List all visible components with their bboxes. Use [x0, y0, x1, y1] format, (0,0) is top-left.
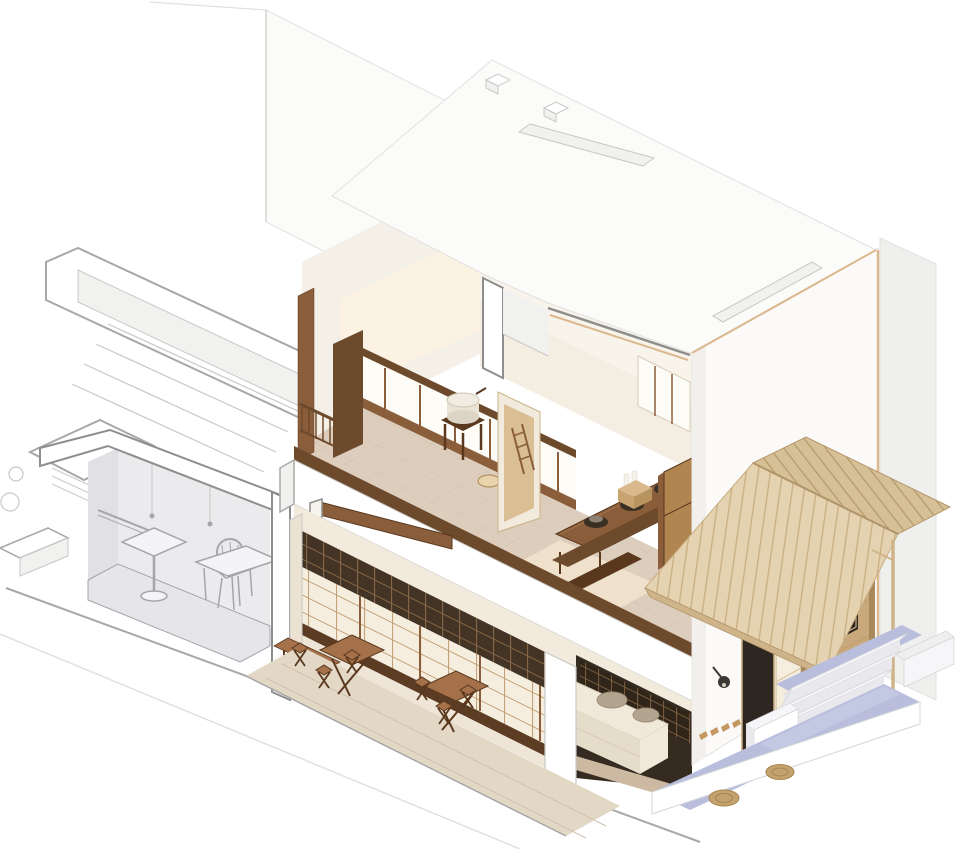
pedestal-table-base	[141, 591, 167, 601]
pot-lid	[589, 516, 603, 523]
pendant-lamp	[208, 522, 213, 527]
stone-mill-base	[447, 410, 479, 424]
kamado-burner-lid	[633, 708, 659, 722]
round-woven-mat	[766, 765, 794, 780]
scene-canvas	[0, 0, 960, 849]
round-woven-mat	[709, 790, 739, 806]
cabinet-side	[658, 472, 664, 570]
corner-post	[298, 288, 314, 460]
kamado-burner-lid	[597, 692, 627, 708]
mat-outer	[709, 790, 739, 806]
lamp-glow	[722, 683, 726, 687]
slab-end-cap	[280, 460, 294, 512]
pendant-lamp	[150, 514, 155, 519]
roof-notch-cut-band	[483, 278, 503, 378]
stone-mill-top	[447, 393, 479, 407]
ghost-side-wall	[88, 448, 118, 580]
basket-bowl	[478, 475, 500, 487]
corner-board	[290, 514, 302, 654]
mat-outer	[766, 765, 794, 780]
axonometric-cutaway-illustration	[0, 0, 960, 849]
earthen-partition-panel	[504, 404, 534, 522]
main-timber-post	[333, 330, 363, 458]
